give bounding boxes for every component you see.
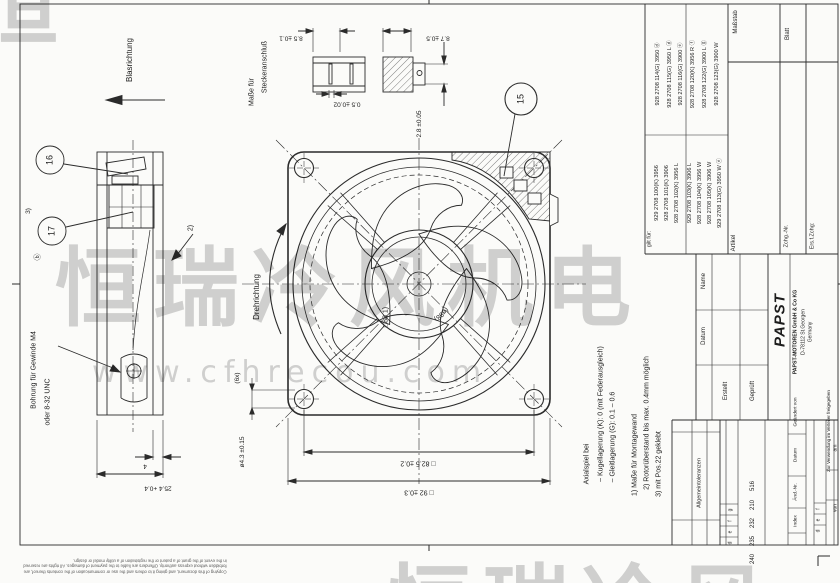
callout-17-note: 3) — [26, 208, 33, 214]
allgemeintoleranzen-label: Allgemeintoleranzen — [697, 458, 703, 508]
dim-hole-count: (6x) — [235, 372, 242, 383]
part-number: 928 2708 101(K) 3906 — [665, 165, 671, 221]
index-label: Index — [795, 515, 800, 527]
name-label: Name — [701, 273, 707, 289]
blasrichtung-label: Blasrichtung — [126, 38, 134, 82]
part-number: 929 2708 103(K) 3906 L — [688, 163, 694, 223]
part-number: 928 2708 102(K) 3956 L — [675, 163, 681, 223]
callout-b-flag: ⓑ — [35, 254, 42, 261]
dim-hole-pitch: □ 82.5 ±0.2 — [400, 460, 435, 467]
edge-number: 235 — [750, 536, 756, 546]
company-city: D-78112 St.Georgen — [802, 309, 807, 355]
edge-number: 210 — [750, 500, 756, 510]
am-label: am — [834, 445, 839, 452]
gilt-fuer-label: gilt für: — [647, 231, 653, 248]
callout-note2: 2) — [188, 225, 195, 231]
rev-datum-label: Datum — [795, 448, 800, 462]
datum-label: Datum — [701, 327, 707, 345]
part-number: 928 2708 104(K) 3956 W — [698, 162, 704, 225]
masstab-label: Maßstab — [733, 10, 739, 33]
index-letter: d — [817, 530, 822, 533]
dim-pin-w: 2.8 ±0.05 — [417, 110, 424, 137]
side-view — [97, 140, 181, 478]
part-number: 928 2708 120(K) 3956 R ⓕ — [691, 40, 697, 108]
index-letter: e — [729, 531, 734, 534]
aend-nr-label: Änd.-Nr. — [795, 483, 800, 501]
drehrichtung-label: Drehrichtung — [253, 274, 261, 320]
erstellt-label: Erstellt — [723, 382, 729, 400]
note-axialspiel: Axialspiel bei — [584, 444, 591, 485]
copyright-note: Copying of this document, and giving it … — [23, 558, 226, 575]
copyright-line: forbidden without express authority. Off… — [23, 563, 226, 569]
part-number: 929 2708 100(K) 3956 — [655, 165, 661, 221]
dim-depth: 25.4 +0.4 — [144, 484, 171, 491]
note-2: 2) Rotorüberstand bis max. 0.4mm möglich — [644, 356, 651, 490]
index-letter: d — [729, 542, 734, 545]
note-gleitlagerung: – Gleitlagerung (G): 0.1 – 0.6 — [610, 392, 617, 483]
geaendert-von-label: Geändert von — [795, 397, 800, 426]
index-letter: g — [729, 509, 734, 512]
part-number: 928 2708 116(G) 3900 ⓔ — [679, 42, 685, 105]
dim-pin-t: 0.5 ±0.02 — [333, 100, 360, 107]
index-letter: f — [817, 508, 822, 509]
part-number: 929 2708 113(G) 3950 W ⓔ — [718, 158, 724, 228]
company-name: PAPST-MOTOREN GmbH & Co KG — [793, 290, 798, 375]
dim-flange: 4 — [143, 462, 147, 469]
note-3: 3) mit Pos.22 geklebt — [656, 431, 663, 497]
dim-stecker-w: 8.5 ±0.1 — [279, 34, 302, 41]
part-number: 928 2708 122(G) 3900 L ⓖ — [703, 40, 709, 108]
part-number: 928 2708 105(K) 3906 W — [708, 162, 714, 225]
fan-front-view — [242, 83, 586, 485]
edge-number: 516 — [750, 481, 756, 491]
edge-number: 232 — [750, 518, 756, 528]
dim-frame-size: □ 92 ±0.3 — [404, 489, 433, 496]
bohrung-label-1: Bohrung für Gewinde M4 — [31, 331, 38, 409]
index-letter: f — [729, 520, 734, 521]
artikel-label: Artikel — [731, 235, 737, 252]
note-kugellagerung: – Kugellagerung (K): 0 (mit Federausglei… — [598, 346, 605, 482]
geprueft-label: Geprüft — [750, 381, 756, 401]
part-number: 928 2708 123(G) 3900 W — [715, 42, 721, 105]
bohrung-label-2: oder 8-32 UNC — [45, 378, 52, 425]
dim-hole-dia: ø4.3 ±0.15 — [240, 436, 247, 467]
copyright-line: Copying of this document, and giving it … — [23, 569, 226, 575]
zchg-nr-label: Zchg.-Nr. — [784, 225, 790, 248]
callout-16: 16 — [46, 155, 55, 165]
callout-17: 17 — [48, 226, 57, 236]
ers-zchg-label: Ers.f.Zchg: — [810, 223, 816, 250]
papst-logo: PAPST — [773, 293, 788, 347]
index-letter: e — [817, 519, 822, 522]
callout-15: 15 — [517, 94, 526, 104]
note-1: 1) Maße für Montagewand — [632, 414, 639, 496]
stecker-label-1: Maße für — [249, 78, 256, 106]
part-number: 928 2708 115(G) 3950 L ⓓ — [668, 40, 674, 107]
dim-stecker-d: 8.7 ±0.5 — [426, 34, 449, 41]
title-block — [645, 4, 838, 545]
verwendung-label: Zur Verwendung im Verteiler freigegeben — [827, 390, 832, 472]
edge-number: 240 — [750, 554, 756, 564]
company-country: Germany — [809, 322, 814, 343]
von-label: von — [834, 504, 839, 512]
part-number: 928 2708 114(G) 3950 ⓓ — [656, 42, 662, 105]
drawing-sheet: 恒瑞冷风机电 www.cfhrecou.com 恒瑞冷风机电 恒 — [0, 0, 840, 583]
stecker-label-2: Steckeranschluß — [262, 41, 269, 93]
dim-hub-square: □88 1) — [383, 307, 390, 327]
blatt-label: Blatt — [785, 28, 791, 40]
